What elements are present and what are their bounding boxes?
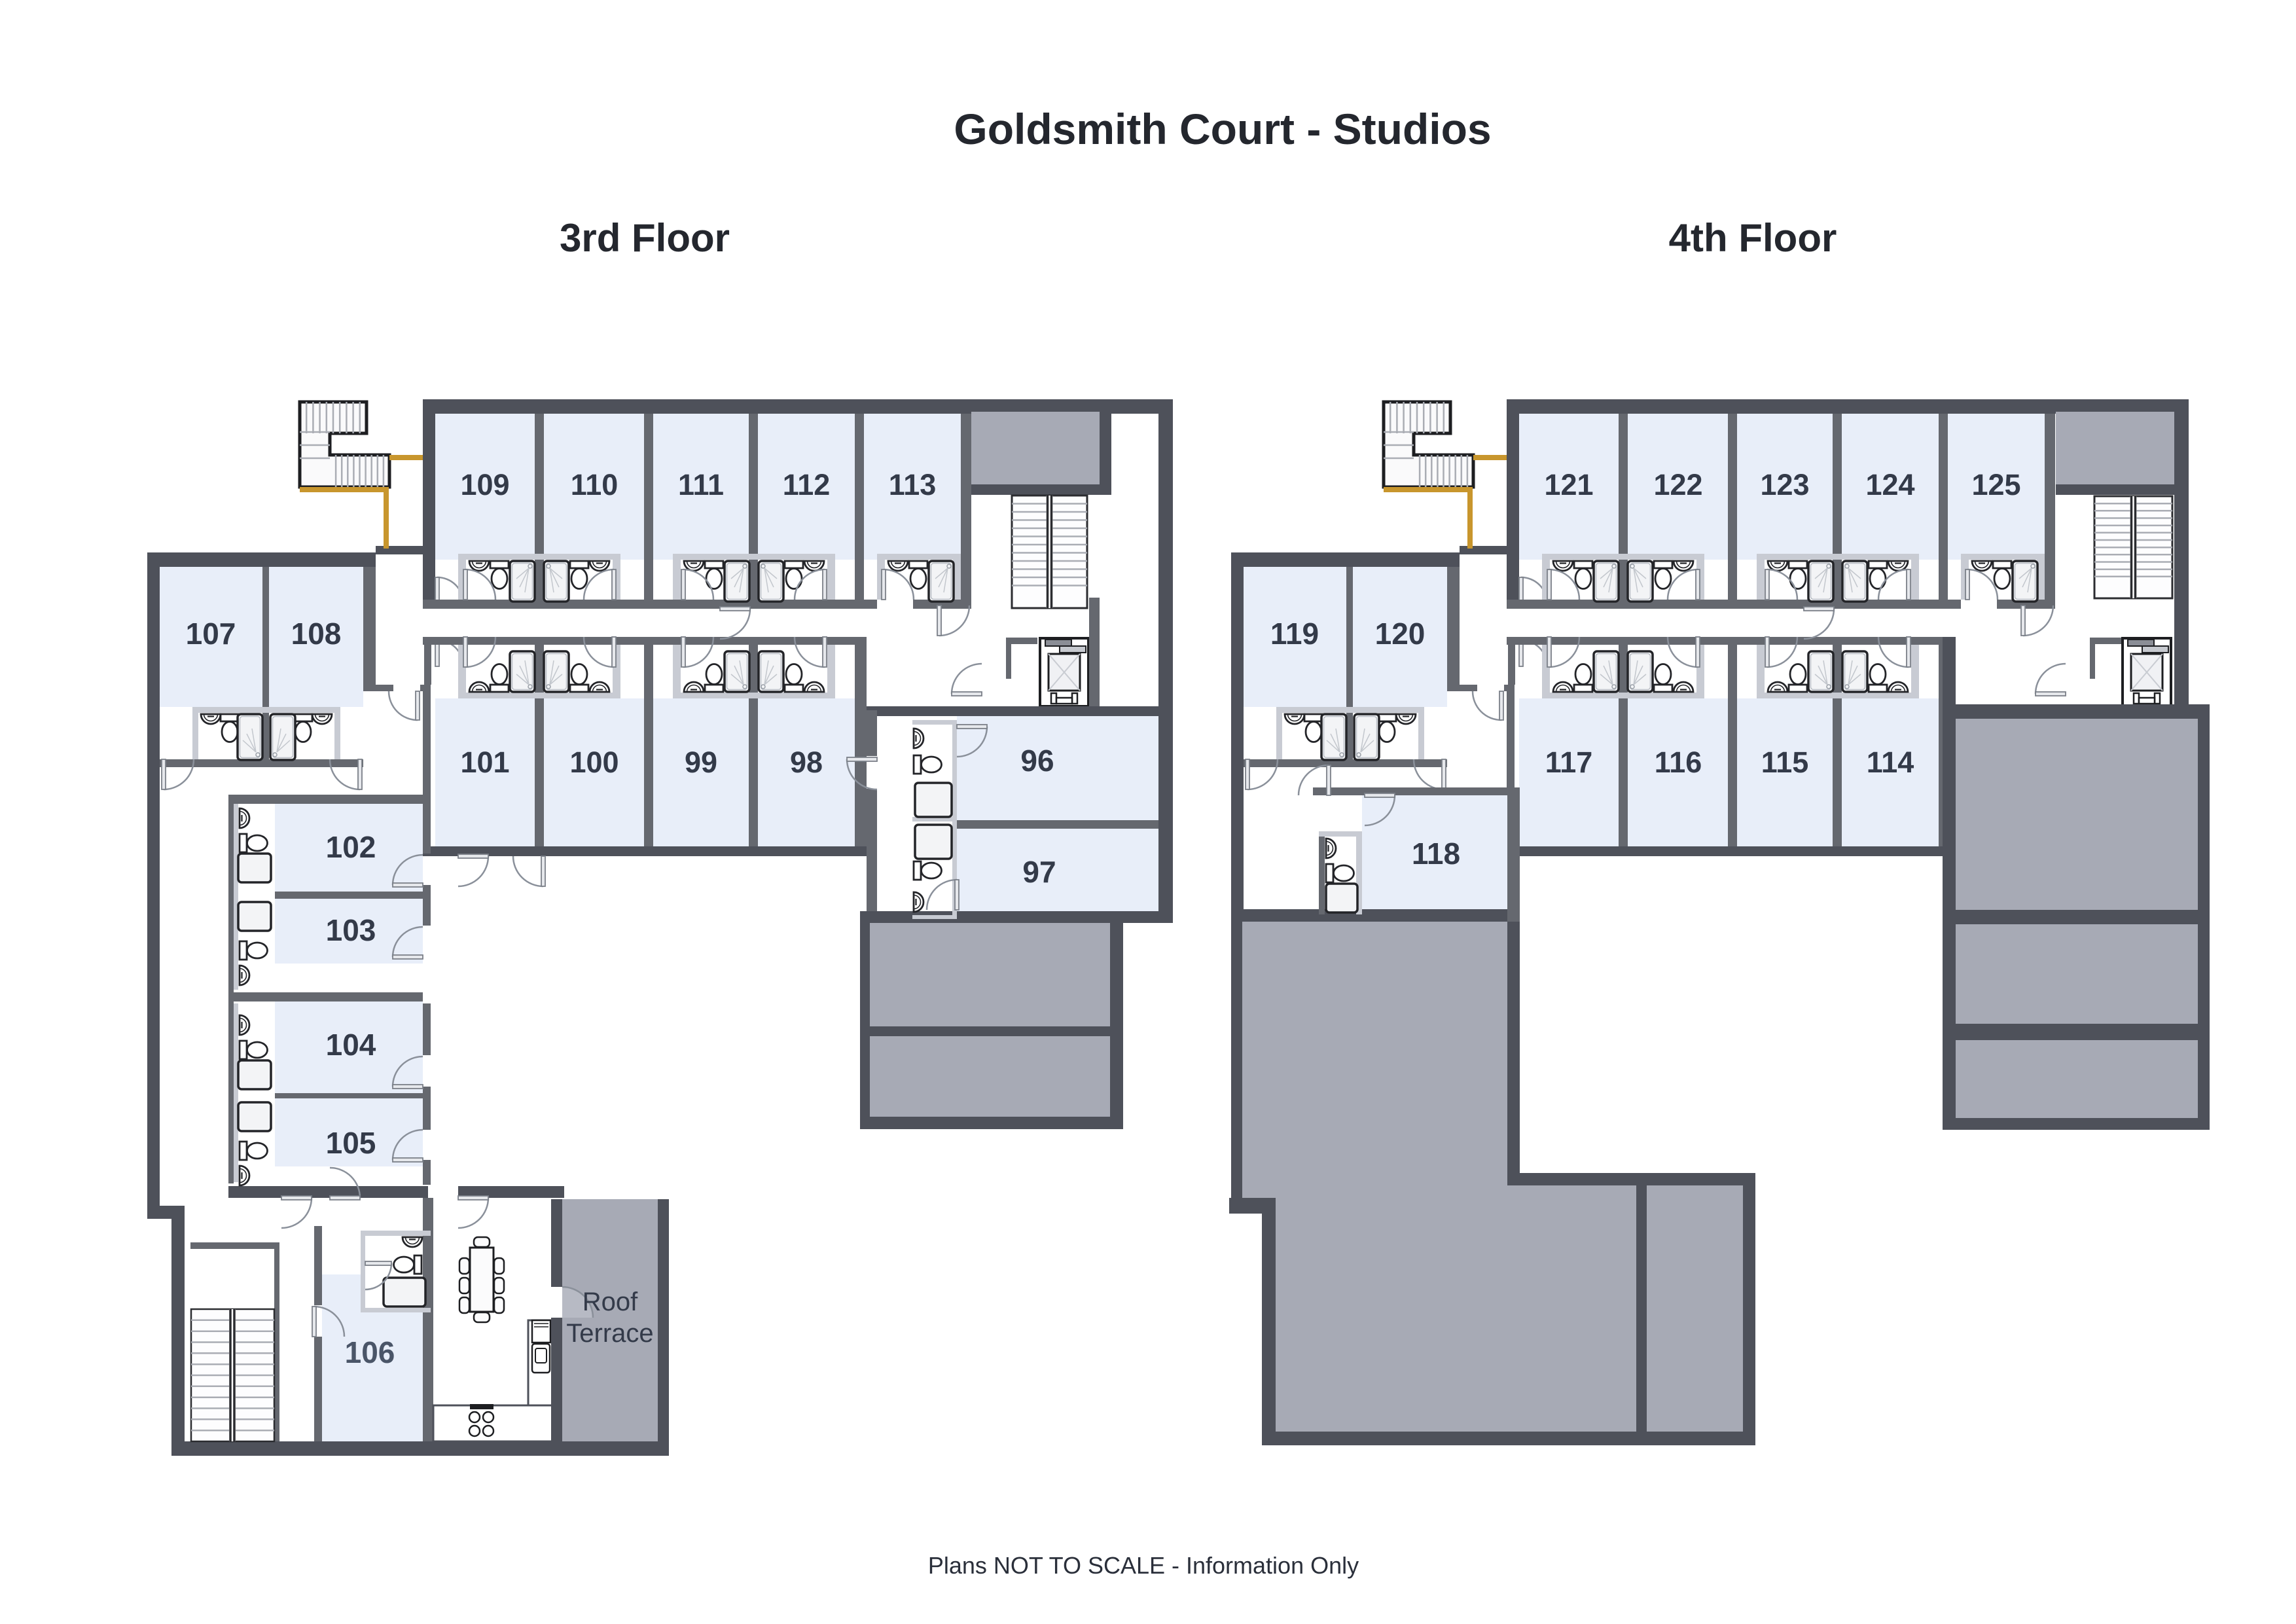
- svg-text:106: 106: [345, 1335, 395, 1369]
- svg-text:124: 124: [1865, 468, 1914, 501]
- svg-text:125: 125: [1971, 468, 2020, 501]
- svg-text:121: 121: [1544, 468, 1593, 501]
- svg-text:101: 101: [460, 746, 509, 779]
- svg-text:107: 107: [186, 617, 236, 651]
- svg-text:119: 119: [1270, 617, 1319, 651]
- svg-text:111: 111: [678, 468, 724, 501]
- svg-text:97: 97: [1022, 855, 1056, 889]
- svg-text:105: 105: [326, 1126, 376, 1160]
- svg-text:115: 115: [1761, 746, 1809, 779]
- svg-text:99: 99: [685, 746, 717, 779]
- svg-text:120: 120: [1375, 617, 1426, 651]
- svg-text:109: 109: [460, 468, 509, 501]
- svg-text:116: 116: [1655, 746, 1702, 779]
- svg-text:108: 108: [291, 617, 342, 651]
- svg-text:112: 112: [783, 468, 831, 501]
- svg-text:102: 102: [326, 830, 376, 864]
- svg-text:103: 103: [326, 913, 376, 947]
- svg-text:123: 123: [1760, 468, 1809, 501]
- svg-text:110: 110: [571, 468, 619, 501]
- svg-text:100: 100: [569, 746, 619, 779]
- svg-text:Roof: Roof: [583, 1288, 638, 1316]
- svg-text:114: 114: [1867, 746, 1914, 779]
- svg-text:117: 117: [1545, 746, 1593, 779]
- svg-text:Terrace: Terrace: [566, 1319, 653, 1348]
- svg-text:Goldsmith Court - Studios: Goldsmith Court - Studios: [954, 105, 1491, 153]
- svg-text:3rd Floor: 3rd Floor: [560, 216, 730, 260]
- svg-text:118: 118: [1412, 837, 1460, 871]
- svg-text:4th Floor: 4th Floor: [1669, 216, 1837, 260]
- svg-text:104: 104: [326, 1028, 376, 1062]
- svg-text:98: 98: [790, 746, 823, 779]
- svg-text:96: 96: [1020, 744, 1054, 778]
- svg-text:Plans NOT TO SCALE - Informati: Plans NOT TO SCALE - Information Only: [928, 1552, 1359, 1579]
- svg-text:122: 122: [1653, 468, 1702, 501]
- svg-text:113: 113: [889, 468, 937, 501]
